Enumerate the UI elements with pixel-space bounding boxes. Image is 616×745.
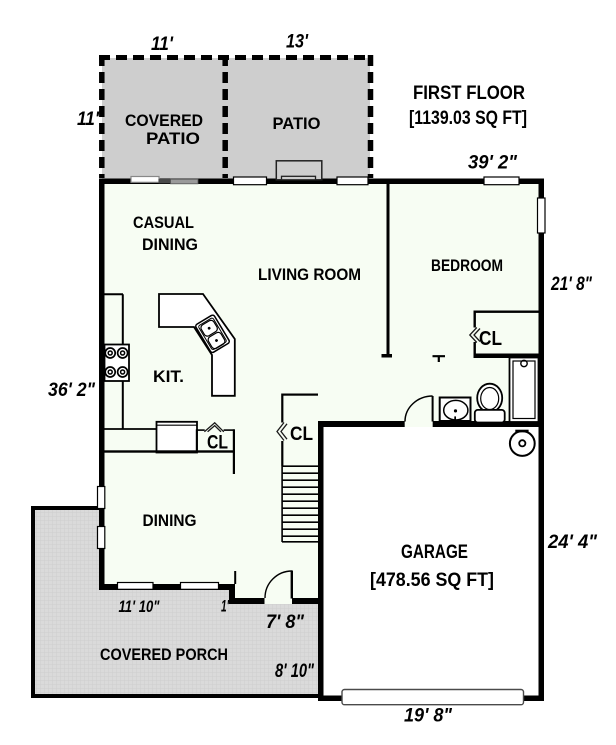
svg-text:[1139.03 SQ FT]: [1139.03 SQ FT]: [409, 108, 527, 129]
svg-text:DINING: DINING: [142, 235, 198, 254]
svg-text:PATIO: PATIO: [146, 129, 200, 148]
svg-text:13': 13': [286, 32, 309, 53]
svg-text:7' 8": 7' 8": [266, 612, 305, 633]
svg-text:11': 11': [77, 109, 100, 130]
svg-text:39' 2": 39' 2": [468, 153, 518, 174]
svg-text:21' 8": 21' 8": [550, 274, 593, 295]
svg-text:1': 1': [221, 597, 230, 616]
svg-text:KIT.: KIT.: [153, 367, 184, 386]
svg-text:COVERED: COVERED: [125, 111, 203, 130]
svg-text:24' 4": 24' 4": [547, 532, 598, 553]
svg-text:LIVING ROOM: LIVING ROOM: [258, 265, 361, 284]
svg-text:DINING: DINING: [143, 511, 197, 530]
svg-text:36' 2": 36' 2": [48, 380, 96, 401]
svg-text:CASUAL: CASUAL: [133, 213, 194, 232]
svg-text:COVERED PORCH: COVERED PORCH: [100, 645, 228, 664]
svg-text:11' 10": 11' 10": [119, 597, 161, 616]
svg-text:BEDROOM: BEDROOM: [431, 256, 503, 275]
svg-text:CL: CL: [290, 424, 313, 445]
svg-text:11': 11': [151, 34, 174, 55]
svg-text:8' 10": 8' 10": [275, 661, 315, 682]
svg-text:[478.56 SQ FT]: [478.56 SQ FT]: [370, 570, 494, 591]
svg-text:PATIO: PATIO: [273, 114, 321, 133]
svg-text:CL: CL: [479, 328, 502, 350]
svg-text:19' 8": 19' 8": [404, 706, 453, 727]
svg-text:GARAGE: GARAGE: [401, 542, 468, 563]
svg-text:FIRST FLOOR: FIRST FLOOR: [413, 83, 525, 104]
